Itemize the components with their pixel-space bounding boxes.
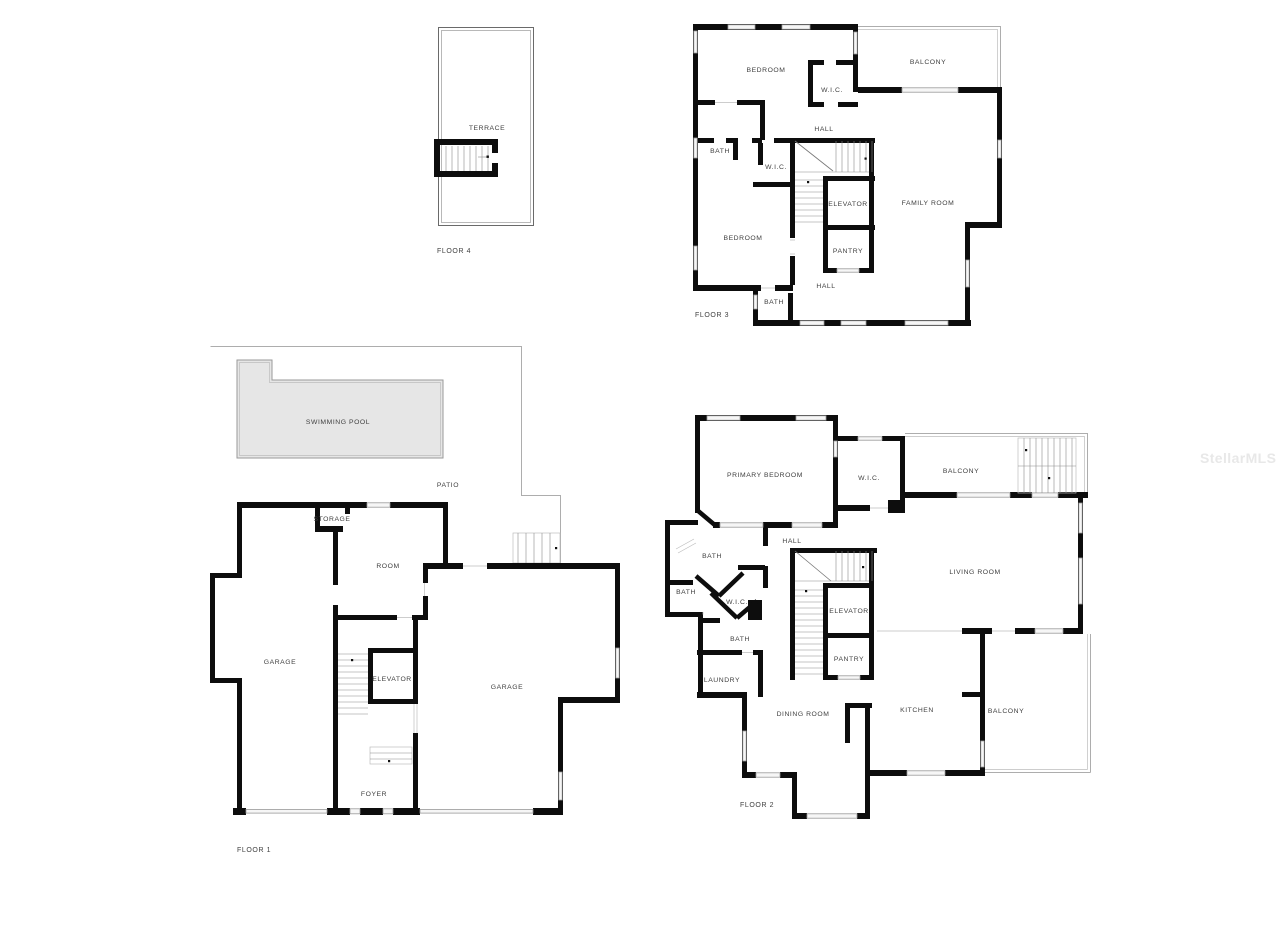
room-label-bath-top: BATH xyxy=(710,148,730,155)
door-gaps xyxy=(715,103,795,289)
room-label-garage-right: GARAGE xyxy=(491,684,523,691)
balcony-outline xyxy=(858,27,1001,89)
exterior-stairs xyxy=(513,533,560,563)
room-label-elevator: ELEVATOR xyxy=(829,608,869,615)
room-label-balcony-top: BALCONY xyxy=(943,468,979,475)
room-label-bath-mid: BATH xyxy=(730,636,750,643)
room-label-family-room: FAMILY ROOM xyxy=(902,200,955,207)
floor-1-plan: SWIMMING POOL PATIO STORAGE ROOM GARAGE … xyxy=(198,342,630,858)
room-label-kitchen: KITCHEN xyxy=(900,707,934,714)
room-label-hall-top: HALL xyxy=(814,126,833,133)
room-label-pantry: PANTRY xyxy=(834,656,864,663)
room-label-patio: PATIO xyxy=(437,482,459,489)
swimming-pool xyxy=(237,360,443,458)
floorplan-page: TERRACE FLOOR 4 xyxy=(0,0,1280,927)
floor-2-label: FLOOR 2 xyxy=(740,802,774,809)
room-label-garage-left: GARAGE xyxy=(264,659,296,666)
room-label-elevator: ELEVATOR xyxy=(372,676,412,683)
room-label-elevator: ELEVATOR xyxy=(828,201,868,208)
room-label-bedroom-top: BEDROOM xyxy=(747,67,786,74)
room-label-balcony: BALCONY xyxy=(910,59,946,66)
windows xyxy=(694,25,1001,325)
room-label-wic-mid: W.I.C. xyxy=(726,599,748,606)
floor-1-label: FLOOR 1 xyxy=(237,847,271,854)
room-label-living-room: LIVING ROOM xyxy=(949,569,1000,576)
room-label-hall: HALL xyxy=(782,538,801,545)
room-label-balcony-right: BALCONY xyxy=(988,708,1024,715)
floor-4-label: FLOOR 4 xyxy=(437,248,471,255)
room-label-swimming-pool: SWIMMING POOL xyxy=(306,419,370,426)
room-label-primary-bedroom: PRIMARY BEDROOM xyxy=(727,472,803,479)
room-label-laundry: LAUNDRY xyxy=(704,677,740,684)
bath-partitions xyxy=(676,539,757,618)
floor-3-label: FLOOR 3 xyxy=(695,312,729,319)
stairs xyxy=(338,654,412,764)
room-label-storage: STORAGE xyxy=(314,516,351,523)
watermark: StellarMLS xyxy=(1200,450,1280,466)
stairs xyxy=(434,139,498,177)
room-label-bath-left: BATH xyxy=(676,589,696,596)
floor-3-plan: BEDROOM W.I.C. BALCONY HALL BATH W.I.C. … xyxy=(686,16,1008,328)
room-label-bedroom-bottom: BEDROOM xyxy=(724,235,763,242)
balcony-outlines xyxy=(905,434,1091,773)
room-label-dining-room: DINING ROOM xyxy=(777,711,830,718)
room-label-wic-mid: W.I.C. xyxy=(765,164,787,171)
room-label-wic-top: W.I.C. xyxy=(821,87,843,94)
walls xyxy=(693,24,1002,326)
room-label-pantry: PANTRY xyxy=(833,248,863,255)
room-label-bath-top: BATH xyxy=(702,553,722,560)
windows xyxy=(350,503,619,814)
room-label-wic-top: W.I.C. xyxy=(858,475,880,482)
room-label-terrace: TERRACE xyxy=(469,125,505,132)
room-label-foyer: FOYER xyxy=(361,791,387,798)
stairs xyxy=(795,141,872,222)
floor-4-plan: TERRACE FLOOR 4 xyxy=(428,18,544,260)
room-label-hall-bottom: HALL xyxy=(816,283,835,290)
room-label-room: ROOM xyxy=(376,563,399,570)
room-label-bath-bottom: BATH xyxy=(764,299,784,306)
floor-2-plan: PRIMARY BEDROOM W.I.C. BALCONY HALL BATH… xyxy=(658,407,1094,827)
